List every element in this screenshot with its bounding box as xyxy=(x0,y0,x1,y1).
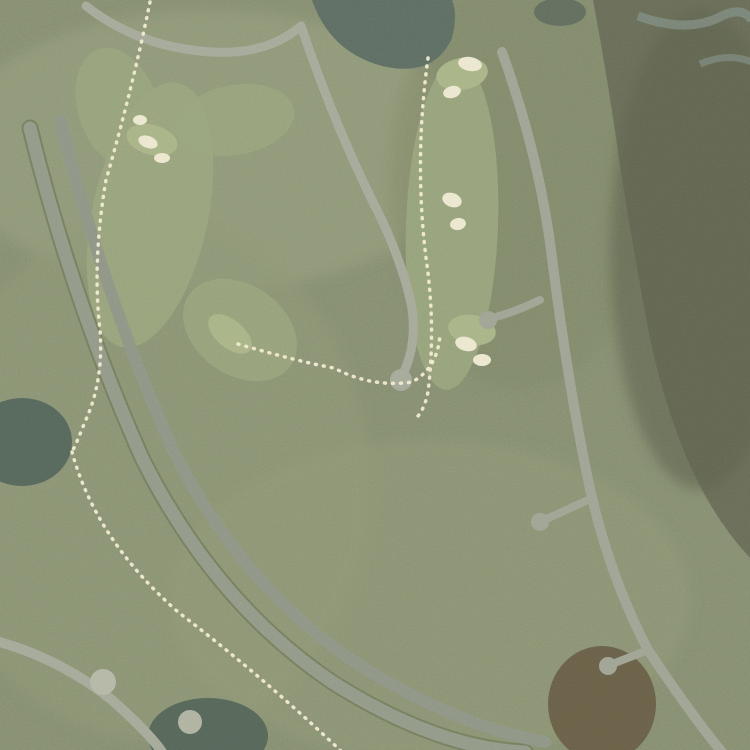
satellite-basemap xyxy=(0,0,750,750)
map-canvas[interactable] xyxy=(0,0,750,750)
noise-overlay xyxy=(0,0,750,750)
